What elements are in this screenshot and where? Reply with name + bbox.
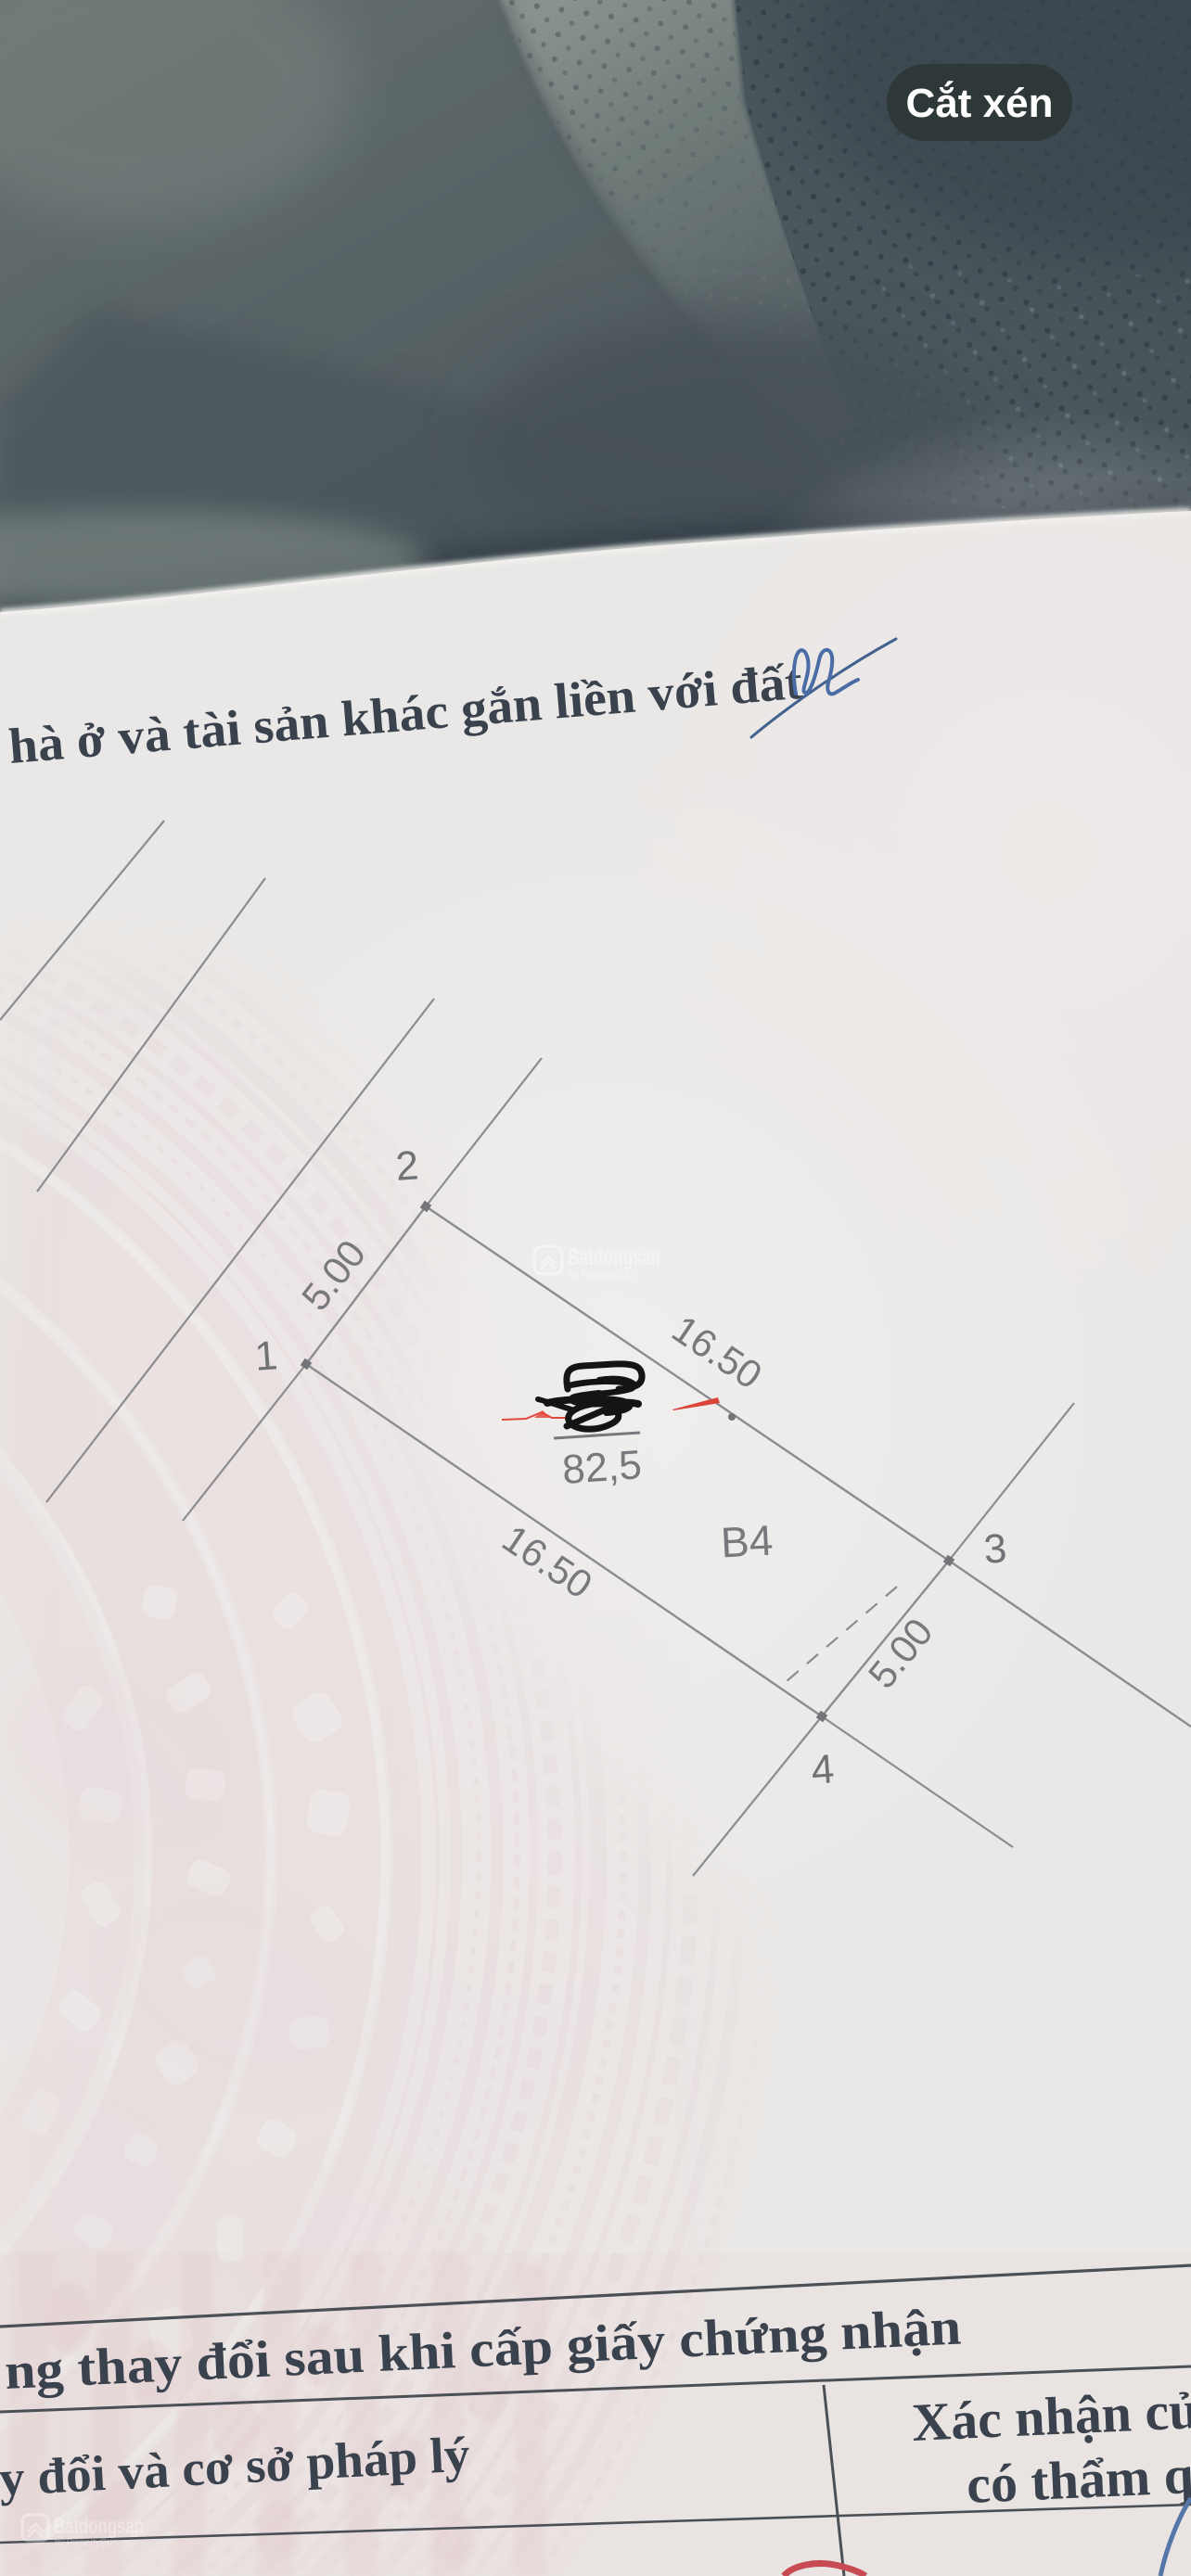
svg-text:B4: B4 (720, 1516, 775, 1567)
svg-text:Xác nhận củ: Xác nhận củ (911, 2379, 1191, 2453)
svg-text:1: 1 (253, 1333, 279, 1380)
svg-text:Batdongsan: Batdongsan (568, 1244, 660, 1270)
svg-text:by PropertyGuru: by PropertyGuru (569, 1269, 635, 1281)
svg-text:by PropertyGuru: by PropertyGuru (55, 2537, 120, 2548)
svg-text:Cắt xén: Cắt xén (906, 80, 1054, 126)
svg-text:có thẩm q: có thẩm q (966, 2444, 1191, 2515)
svg-text:Batdongsan: Batdongsan (54, 2514, 144, 2539)
svg-text:82,5: 82,5 (561, 1442, 644, 1493)
svg-text:2: 2 (394, 1142, 420, 1190)
svg-text:3: 3 (982, 1525, 1008, 1573)
svg-text:4: 4 (810, 1746, 836, 1793)
